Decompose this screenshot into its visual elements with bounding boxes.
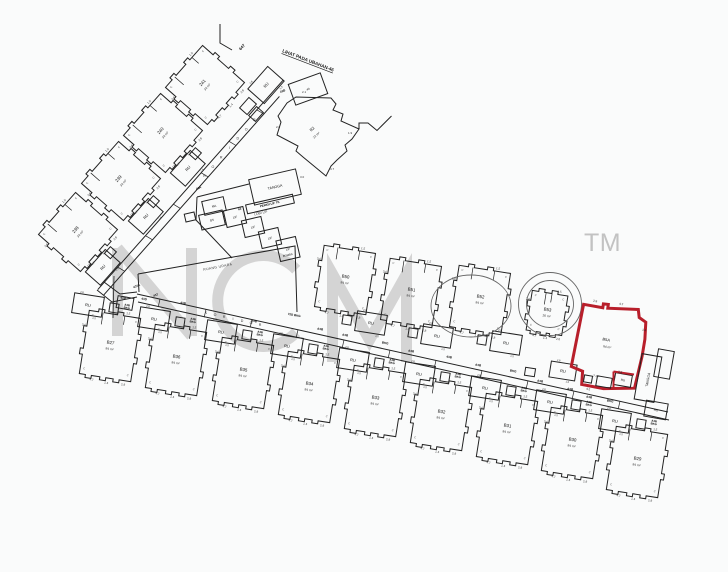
svg-text:1.9: 1.9: [348, 131, 353, 135]
svg-text:D: D: [236, 137, 239, 141]
svg-text:RU: RU: [85, 302, 92, 308]
svg-text:RU: RU: [284, 343, 291, 349]
svg-text:2.8: 2.8: [276, 125, 281, 129]
svg-text:O: O: [245, 127, 248, 131]
svg-text:RU: RU: [218, 329, 225, 335]
svg-text:D: D: [241, 319, 244, 323]
svg-text:4.7: 4.7: [330, 167, 335, 171]
svg-text:RU: RU: [547, 399, 554, 405]
svg-text:3.0: 3.0: [300, 175, 305, 179]
svg-text:RU: RU: [653, 408, 658, 413]
svg-text:RU: RU: [416, 371, 423, 377]
svg-text:RU: RU: [560, 368, 567, 374]
svg-text:RU: RU: [503, 340, 510, 346]
svg-text:RU: RU: [612, 418, 619, 424]
svg-text:R: R: [220, 155, 223, 159]
svg-text:RU: RU: [482, 385, 489, 391]
svg-text:I: I: [233, 317, 234, 321]
svg-text:R: R: [259, 323, 262, 327]
svg-text:TM: TM: [584, 229, 621, 257]
svg-text:O: O: [212, 165, 215, 169]
svg-text:RU: RU: [434, 333, 441, 339]
svg-text:R: R: [223, 315, 226, 319]
svg-text:RU: RU: [620, 378, 625, 383]
svg-text:RU: RU: [368, 320, 375, 326]
svg-text:RU: RU: [151, 316, 158, 322]
svg-text:O: O: [214, 313, 217, 317]
svg-text:I: I: [229, 146, 230, 150]
svg-text:RU: RU: [350, 357, 357, 363]
